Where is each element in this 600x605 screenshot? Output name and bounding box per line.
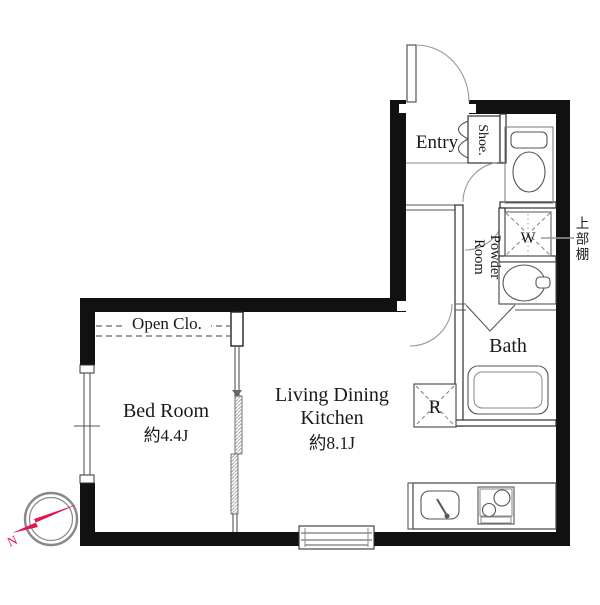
floor-plan: Entry Shoe. W 上部棚 Powder Room: [0, 0, 600, 600]
ldk-label-line1: Living Dining: [275, 384, 389, 406]
wall-top: [469, 100, 570, 114]
floor-plan-page: Entry Shoe. W 上部棚 Powder Room: [0, 0, 600, 600]
sliding-door-panel-2: [231, 454, 238, 514]
bedroom-size-label: 約4.4J: [144, 426, 189, 445]
stove-burner-small: [483, 504, 496, 517]
bedroom-window-bg: [78, 365, 96, 483]
entry-label: Entry: [416, 132, 459, 153]
entry-door-swing-arc: [416, 45, 469, 102]
upper-shelf-label: 上部棚: [574, 216, 590, 263]
bedroom-label: Bed Room: [123, 400, 210, 422]
ldk-size-label: 約8.1J: [309, 433, 355, 453]
powder-room-label-line2: Room: [471, 239, 487, 275]
corridor: [406, 205, 457, 346]
wall-bottom-right: [373, 532, 570, 546]
refrigerator-space: R: [414, 384, 456, 427]
compass-north-label: N: [5, 532, 20, 550]
sliding-door-panel-1: [235, 396, 242, 454]
partition-wall-lines-upper: [235, 346, 239, 396]
washer-label: W: [520, 230, 536, 247]
bedroom-window-cap-bottom: [80, 475, 94, 483]
entry-door-leaf: [407, 45, 416, 102]
wall-bottom-left: [80, 532, 300, 546]
bedroom-window-cap-top: [80, 365, 94, 373]
open-closet: Open Clo.: [96, 312, 231, 336]
ldk-label-line2: Kitchen: [300, 407, 363, 429]
bath-room: Bath: [455, 304, 556, 426]
stove-burner-large: [494, 490, 510, 506]
bedroom-partition: [231, 312, 243, 532]
kitchen-counter-end-panel: [408, 483, 413, 529]
bath-folding-door: [466, 305, 515, 331]
bedroom-labels: Bed Room 約4.4J: [123, 400, 210, 445]
bath-label: Bath: [489, 335, 527, 357]
powder-room-label-line1: Powder: [487, 235, 503, 279]
wall-upper-left: [390, 100, 406, 312]
washbasin-faucet: [536, 277, 550, 288]
wall-wing-left-lower: [80, 483, 95, 546]
wall-right: [556, 100, 570, 546]
kitchen: [408, 483, 556, 529]
partition-wall-lines-lower: [233, 514, 237, 532]
ldk-labels: Living Dining Kitchen 約8.1J: [275, 384, 389, 453]
toilet-bowl: [513, 152, 545, 192]
kitchen-faucet-base: [445, 514, 450, 519]
bath-bottom-wall: [455, 420, 556, 426]
corridor-opening-lines: [406, 205, 457, 210]
ldk-door-swing-arc: [410, 304, 452, 346]
compass: N: [5, 493, 78, 550]
partition-pillar: [231, 312, 243, 346]
bedroom-window: [74, 365, 100, 483]
compass-outer-ring: [25, 493, 77, 545]
shoe-cabinet-bifold-doors: [459, 121, 469, 158]
washer-bottom-wall: [499, 256, 556, 262]
refrigerator-label: R: [429, 397, 442, 418]
bathtub-outer: [468, 366, 548, 414]
toilet-tank: [511, 132, 547, 148]
wall-wing-top: [80, 298, 406, 312]
shoe-cabinet-label: Shoe.: [475, 124, 490, 156]
toilet-door-swing-arc: [463, 162, 503, 202]
open-closet-label: Open Clo.: [132, 314, 202, 333]
ldk-window: [299, 526, 374, 549]
